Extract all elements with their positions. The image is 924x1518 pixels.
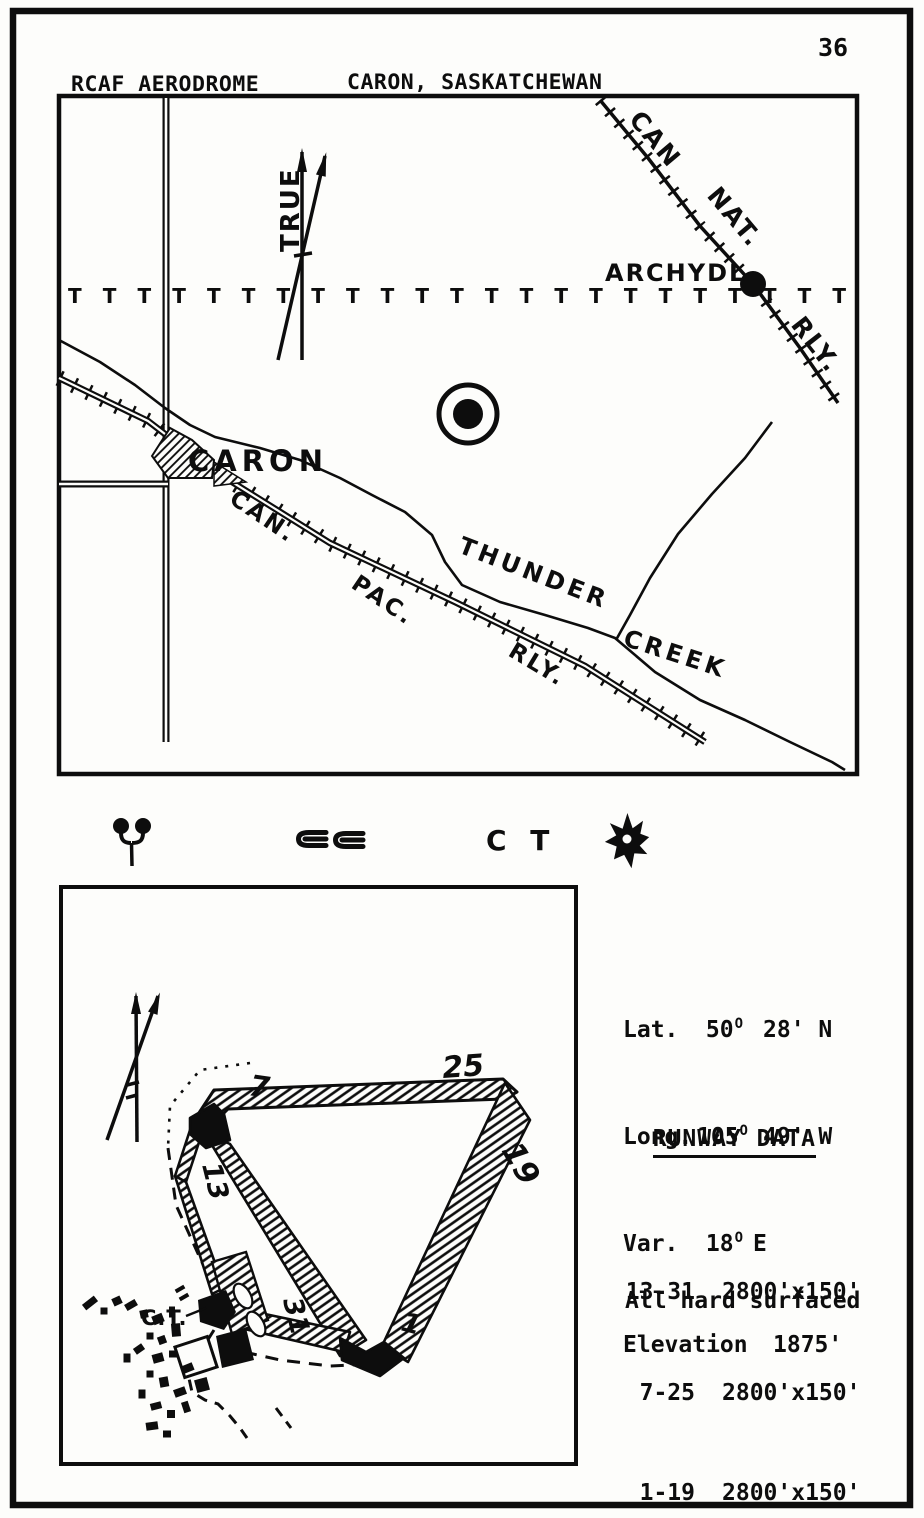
beacon-icon xyxy=(604,812,651,869)
aerodrome-plan: 7 25 13 31 19 1 C.T. xyxy=(61,887,576,1464)
runway-designation: 7-25 xyxy=(625,1377,695,1411)
runway-designation: 1-19 xyxy=(625,1477,695,1511)
degree-mark: O xyxy=(735,1016,743,1032)
runway-size: 2800'x150' xyxy=(722,1380,860,1406)
plan-control-tower-label: C.T. xyxy=(141,1306,188,1330)
runway-row: 1-192800'x150' xyxy=(625,1477,860,1511)
legend-row: C T xyxy=(113,812,650,869)
true-north-label: TRUE xyxy=(276,167,306,252)
town-label: CARON xyxy=(188,444,328,478)
wind-indicator-icon xyxy=(113,818,151,866)
runway-label-25: 25 xyxy=(441,1048,485,1086)
surface-note: All hard surfaced xyxy=(625,1288,860,1314)
lat-label: Lat. xyxy=(623,1014,697,1048)
telephone-line: T T T T T T T T T T T T T T T T T T T T … xyxy=(68,284,846,308)
control-tower-symbol: C T xyxy=(486,824,556,857)
aerodrome-chart-page: T T T T T T T T T T T T T T T T T T T T … xyxy=(0,0,924,1518)
runway-data-heading: RUNWAY DATA xyxy=(653,1126,816,1158)
runway-row: 7-252800'x150' xyxy=(625,1377,860,1411)
station-label: ARCHYDL xyxy=(605,259,746,287)
lat-minutes: 28' N xyxy=(763,1017,832,1043)
location-map: T T T T T T T T T T T T T T T T T T T T … xyxy=(59,96,857,774)
hangar-icon xyxy=(299,833,364,847)
page-number: 36 xyxy=(818,33,848,62)
location-title: CARON, SASKATCHEWAN xyxy=(347,70,602,95)
runway-size: 2800'x150' xyxy=(722,1480,860,1506)
latitude-row: Lat.50O28' N xyxy=(623,1008,842,1048)
lat-degrees: 50 xyxy=(706,1017,734,1043)
document-title: RCAF AERODROME xyxy=(71,72,259,97)
